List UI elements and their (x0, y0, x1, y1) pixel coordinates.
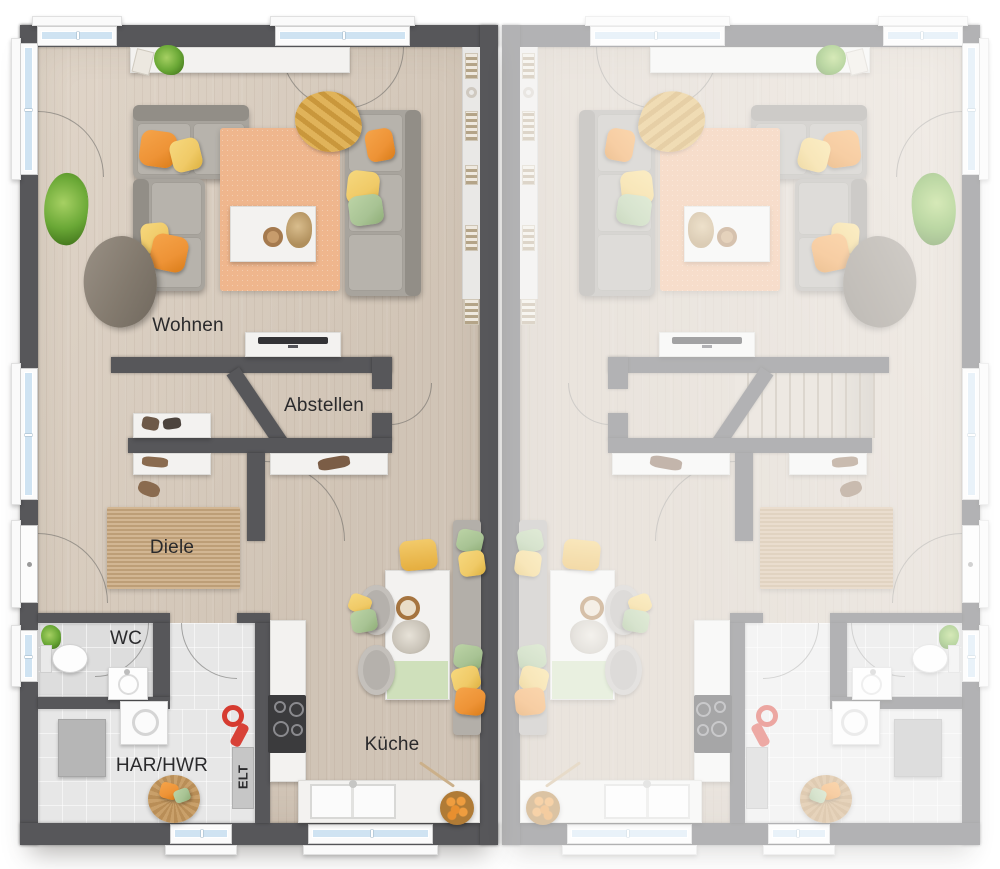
sink-divider (351, 786, 354, 817)
utility-cabinet (58, 719, 106, 777)
window (567, 824, 692, 844)
wall (247, 453, 265, 541)
window-sill (878, 16, 968, 26)
wall (128, 438, 392, 453)
wall (608, 357, 628, 389)
terrace-door (275, 26, 410, 46)
pillow (615, 193, 653, 227)
toilet (52, 644, 88, 673)
book-stack (465, 53, 478, 79)
faucet (870, 669, 876, 675)
hall-rug (760, 507, 893, 589)
dining-chair-yellow (562, 538, 602, 572)
window (768, 824, 830, 844)
room-label-elt: ELT (236, 765, 251, 789)
window-sill (979, 625, 989, 687)
washer-door (841, 709, 868, 736)
room-label-diele: Diele (150, 537, 194, 559)
floorplan-canvas: Wohnen Abstellen Diele WC HAR/HWR ELT Kü… (0, 0, 1000, 869)
vase (523, 87, 534, 98)
wall (38, 613, 170, 623)
window (883, 26, 963, 46)
burner (714, 701, 726, 713)
entry-door (962, 525, 980, 603)
centerpiece-bowl (580, 596, 604, 620)
basin-bowl (118, 674, 139, 695)
bench-pillow (457, 549, 486, 577)
wall (730, 623, 745, 823)
wall (608, 357, 889, 373)
burner (291, 724, 303, 736)
faucet (349, 780, 357, 788)
entry-door (20, 525, 38, 603)
tv-stand (702, 345, 712, 348)
book-stack (522, 111, 535, 141)
window (170, 824, 232, 844)
terrace-door (962, 43, 980, 175)
window-sill (979, 38, 989, 180)
tv-stand (288, 345, 298, 348)
window-sill (562, 845, 697, 855)
fruit-bowl (440, 791, 474, 825)
burner (289, 702, 304, 717)
coat-item (141, 416, 160, 432)
dining-chair (605, 645, 642, 695)
burner (273, 721, 289, 737)
faucet (643, 780, 651, 788)
washer-door (132, 709, 159, 736)
window (308, 824, 433, 844)
toilet-tank (40, 645, 52, 673)
burner (274, 701, 286, 713)
book-stack (465, 111, 478, 141)
book-stack (522, 53, 535, 79)
bench-pillow (514, 687, 547, 717)
burner (697, 724, 709, 736)
book-stack (522, 225, 535, 251)
window-sill (270, 16, 415, 26)
serving-tray (717, 227, 737, 247)
serving-tray (263, 227, 283, 247)
fruit-bowl (526, 791, 560, 825)
book-stack (464, 299, 479, 325)
burner (696, 702, 711, 717)
wall (608, 438, 872, 453)
book-stack (522, 165, 535, 185)
room-label-abstellen: Abstellen (284, 395, 364, 417)
table-runner (387, 661, 448, 699)
window (962, 630, 980, 682)
wall (372, 413, 392, 440)
book-stack (521, 299, 536, 325)
window-sill (979, 520, 989, 608)
utility-cabinet (894, 719, 942, 777)
dining-chair-yellow (399, 538, 439, 572)
wall (237, 613, 270, 623)
wall (372, 357, 392, 389)
wall (730, 613, 763, 623)
sink-divider (646, 786, 649, 817)
bench-pillow (513, 549, 542, 577)
floorplan-unit: Wohnen Abstellen Diele WC HAR/HWR ELT Kü… (502, 25, 980, 845)
window-sill (585, 16, 730, 26)
party-wall (502, 25, 520, 845)
window-sill (165, 845, 237, 855)
bench-pillow (454, 687, 487, 717)
dried-flowers (570, 620, 608, 654)
window-sill (303, 845, 438, 855)
pillow (363, 127, 396, 163)
potted-plant (154, 45, 184, 75)
room-label-kueche: Küche (365, 734, 420, 756)
window-sill (763, 845, 835, 855)
tv (672, 337, 742, 344)
window (962, 368, 980, 500)
terrace-door (20, 43, 38, 175)
wall (153, 623, 170, 699)
book-stack (465, 225, 478, 251)
pillow (347, 193, 385, 227)
burner (711, 721, 727, 737)
room-label-wohnen: Wohnen (152, 315, 224, 337)
faucet (124, 669, 130, 675)
wall (608, 413, 628, 440)
table-plant (286, 212, 312, 248)
window (37, 26, 117, 46)
centerpiece-bowl (396, 596, 420, 620)
toilet-tank (948, 645, 960, 673)
window (20, 368, 38, 500)
wall (111, 357, 392, 373)
electrical-cabinet (746, 747, 768, 809)
party-wall (480, 25, 498, 845)
chair-cushion (621, 608, 650, 634)
wall (830, 623, 847, 699)
toilet (912, 644, 948, 673)
tv (258, 337, 328, 344)
table-runner (552, 661, 613, 699)
window (20, 630, 38, 682)
terrace-door (590, 26, 725, 46)
wall (830, 613, 962, 623)
window-sill (32, 16, 122, 26)
window-sill (979, 363, 989, 505)
book-stack (465, 165, 478, 185)
wall (735, 453, 753, 541)
basin-bowl (861, 674, 882, 695)
room-label-har-hwr: HAR/HWR (116, 755, 208, 777)
vase (466, 87, 477, 98)
dining-chair (358, 645, 395, 695)
floorplan-unit: Wohnen Abstellen Diele WC HAR/HWR ELT Kü… (20, 25, 498, 845)
room-label-wc: WC (110, 628, 142, 650)
table-plant (688, 212, 714, 248)
